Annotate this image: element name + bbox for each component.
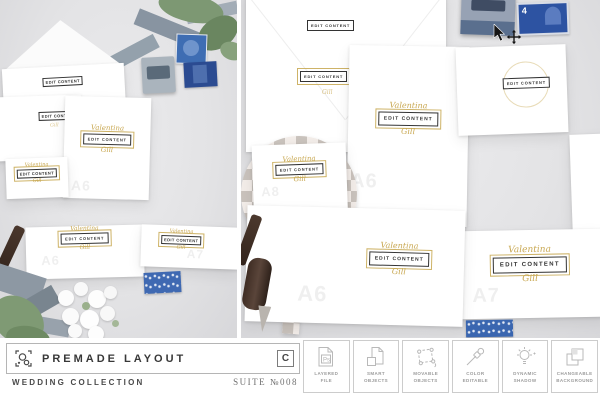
brand-box: PREMADE LAYOUT C [6, 343, 300, 374]
script-text: Valentina [508, 246, 551, 256]
script-text: Valentina [282, 155, 315, 163]
feature-movable-objects: MOVABLEOBJECTS [402, 340, 449, 393]
feature-label: COLOREDITABLE [463, 371, 488, 385]
product-preview: EDIT CONTENT EDIT CONTENT Gill Valentina… [0, 0, 600, 400]
script-text: Valentina [380, 242, 418, 251]
card-content: Valentina EDIT CONTENT Gill [351, 241, 448, 278]
feature-label: MOVABLEOBJECTS [413, 371, 438, 385]
envelope-fold-line [245, 0, 346, 120]
edit-content-label: EDIT CONTENT [503, 77, 551, 90]
script-text: Valentina [91, 125, 124, 133]
stationery-card: Valentina EDIT CONTENT Gill A6 [25, 224, 144, 279]
watermark: A6 [71, 178, 91, 193]
edit-content-label: EDIT CONTENT [378, 111, 439, 126]
edit-content-label: EDIT CONTENT [276, 163, 324, 176]
stationery-card: Valentina EDIT CONTENT Gill A6 [346, 45, 469, 227]
feature-changeable-background: CHANGEABLEBACKGROUND [551, 340, 598, 393]
watermark: A6 [41, 254, 60, 267]
script-text: Gill [33, 179, 42, 184]
postage-stamp [175, 33, 207, 64]
collection-label: WEDDING COLLECTION [12, 378, 144, 387]
flower [62, 308, 79, 325]
feature-label: LAYEREDFILE [314, 371, 338, 385]
postage-stamp [183, 61, 217, 88]
edit-content-label: EDIT CONTENT [84, 133, 131, 145]
script-text: Valentina [70, 226, 99, 233]
script-text: Gill [392, 268, 406, 276]
mockup-photo-right: EDIT CONTENT EDIT CONTENT Gill Valentina… [241, 0, 600, 338]
stamp-denomination: 4 [522, 6, 527, 16]
script-text: Gill [50, 123, 59, 128]
stationery-card: EDIT CONTENT [455, 44, 568, 136]
flower [58, 290, 74, 306]
flowers-bouquet [54, 282, 126, 338]
edit-content-label: EDIT CONTENT [493, 256, 567, 273]
script-text: Gill [322, 90, 333, 96]
feature-label: CHANGEABLEBACKGROUND [556, 371, 593, 385]
script-text: Gill [401, 128, 415, 136]
postage-stamp [466, 320, 513, 338]
stationery-card: Valentina EDIT CONTENT Gill A7 [453, 229, 600, 320]
postage-stamp-portrait [545, 6, 562, 25]
feature-layered-file: Ps LAYEREDFILE [303, 340, 350, 393]
card-content: Valentina EDIT CONTENT Gill [25, 224, 144, 252]
script-text: Gill [101, 147, 113, 154]
card-content: Valentina EDIT CONTENT Gill [466, 245, 595, 285]
feature-label: DYNAMICSHADOW [513, 371, 537, 385]
footer-bar: PREMADE LAYOUT C WEDDING COLLECTION SUIT… [0, 338, 600, 400]
watermark: A6 [297, 283, 328, 306]
brand-letter-badge: C [277, 350, 294, 367]
script-text: Valentina [25, 163, 49, 169]
smart-objects-icon [364, 345, 388, 369]
edit-content-label: EDIT CONTENT [307, 20, 354, 31]
postage-stamp [143, 271, 181, 294]
edit-content-label: EDIT CONTENT [300, 71, 347, 82]
script-text: Gill [176, 246, 185, 251]
script-text: Gill [80, 245, 91, 251]
stationery-card: Valentina EDIT CONTENT Gill [5, 157, 68, 199]
stationery-card: Valentina EDIT CONTENT Gill A7 [140, 224, 237, 269]
feature-list: Ps LAYEREDFILE SMARTOBJECTS [303, 340, 598, 393]
card-content: Valentina EDIT CONTENT Gill [348, 101, 469, 137]
lightbulb-icon [513, 345, 537, 369]
mouse-cursor-move-icon [493, 24, 523, 48]
brand-title: PREMADE LAYOUT [42, 353, 277, 365]
flower [88, 326, 104, 338]
stationery-card [569, 133, 600, 231]
stationery-card: Valentina EDIT CONTENT Gill A6 [63, 96, 152, 200]
feature-color-editable: COLOREDITABLE [452, 340, 499, 393]
movable-objects-icon [414, 345, 438, 369]
flower [100, 306, 115, 321]
postage-stamp-art: 4 [519, 3, 568, 34]
script-text: Gill [522, 275, 538, 284]
footer-subrow: WEDDING COLLECTION SUITE №008 [12, 377, 298, 387]
watermark: A8 [261, 185, 280, 199]
card-content: Valentina EDIT CONTENT Gill [64, 124, 151, 155]
suite-number: SUITE №008 [233, 377, 298, 387]
feature-smart-objects: SMARTOBJECTS [353, 340, 400, 393]
objects-frame-icon [13, 348, 34, 369]
rubber-stamp [141, 56, 176, 94]
edit-content-label: EDIT CONTENT [369, 251, 430, 267]
card-content: Valentina EDIT CONTENT Gill [5, 162, 68, 185]
script-text: Valentina [389, 102, 427, 111]
flower [68, 324, 82, 338]
postage-stamp-art [177, 35, 207, 64]
mockup-photo-left: EDIT CONTENT EDIT CONTENT Gill Valentina… [0, 0, 237, 338]
flower-bud [112, 320, 119, 327]
card-content: Valentina EDIT CONTENT Gill [252, 154, 347, 184]
feature-label: SMARTOBJECTS [364, 371, 388, 385]
watermark: A7 [472, 286, 500, 306]
flower-bud [82, 302, 90, 310]
stationery-card: Valentina EDIT CONTENT Gill A6 [245, 205, 466, 327]
flower [74, 282, 88, 296]
svg-text:Ps: Ps [323, 358, 330, 364]
rubber-stamp-slot [147, 65, 171, 79]
script-text: Gill [293, 176, 306, 183]
flower [104, 286, 117, 299]
postage-stamp: 4 [516, 1, 569, 36]
feature-dynamic-shadow: DYNAMICSHADOW [502, 340, 549, 393]
watermark: A7 [187, 248, 205, 261]
rubber-stamp-slot [471, 0, 505, 12]
layered-file-icon: Ps [314, 345, 338, 369]
edit-content-label: EDIT CONTENT [42, 76, 83, 87]
card-content: Valentina EDIT CONTENT Gill [141, 228, 222, 252]
eyedropper-icon [463, 345, 487, 369]
postage-stamp-motif [193, 65, 208, 84]
edit-content-label: EDIT CONTENT [61, 232, 108, 244]
postage-stamp-motif [183, 40, 200, 57]
script-text: Valentina [170, 229, 194, 235]
changeable-background-icon [563, 345, 587, 369]
